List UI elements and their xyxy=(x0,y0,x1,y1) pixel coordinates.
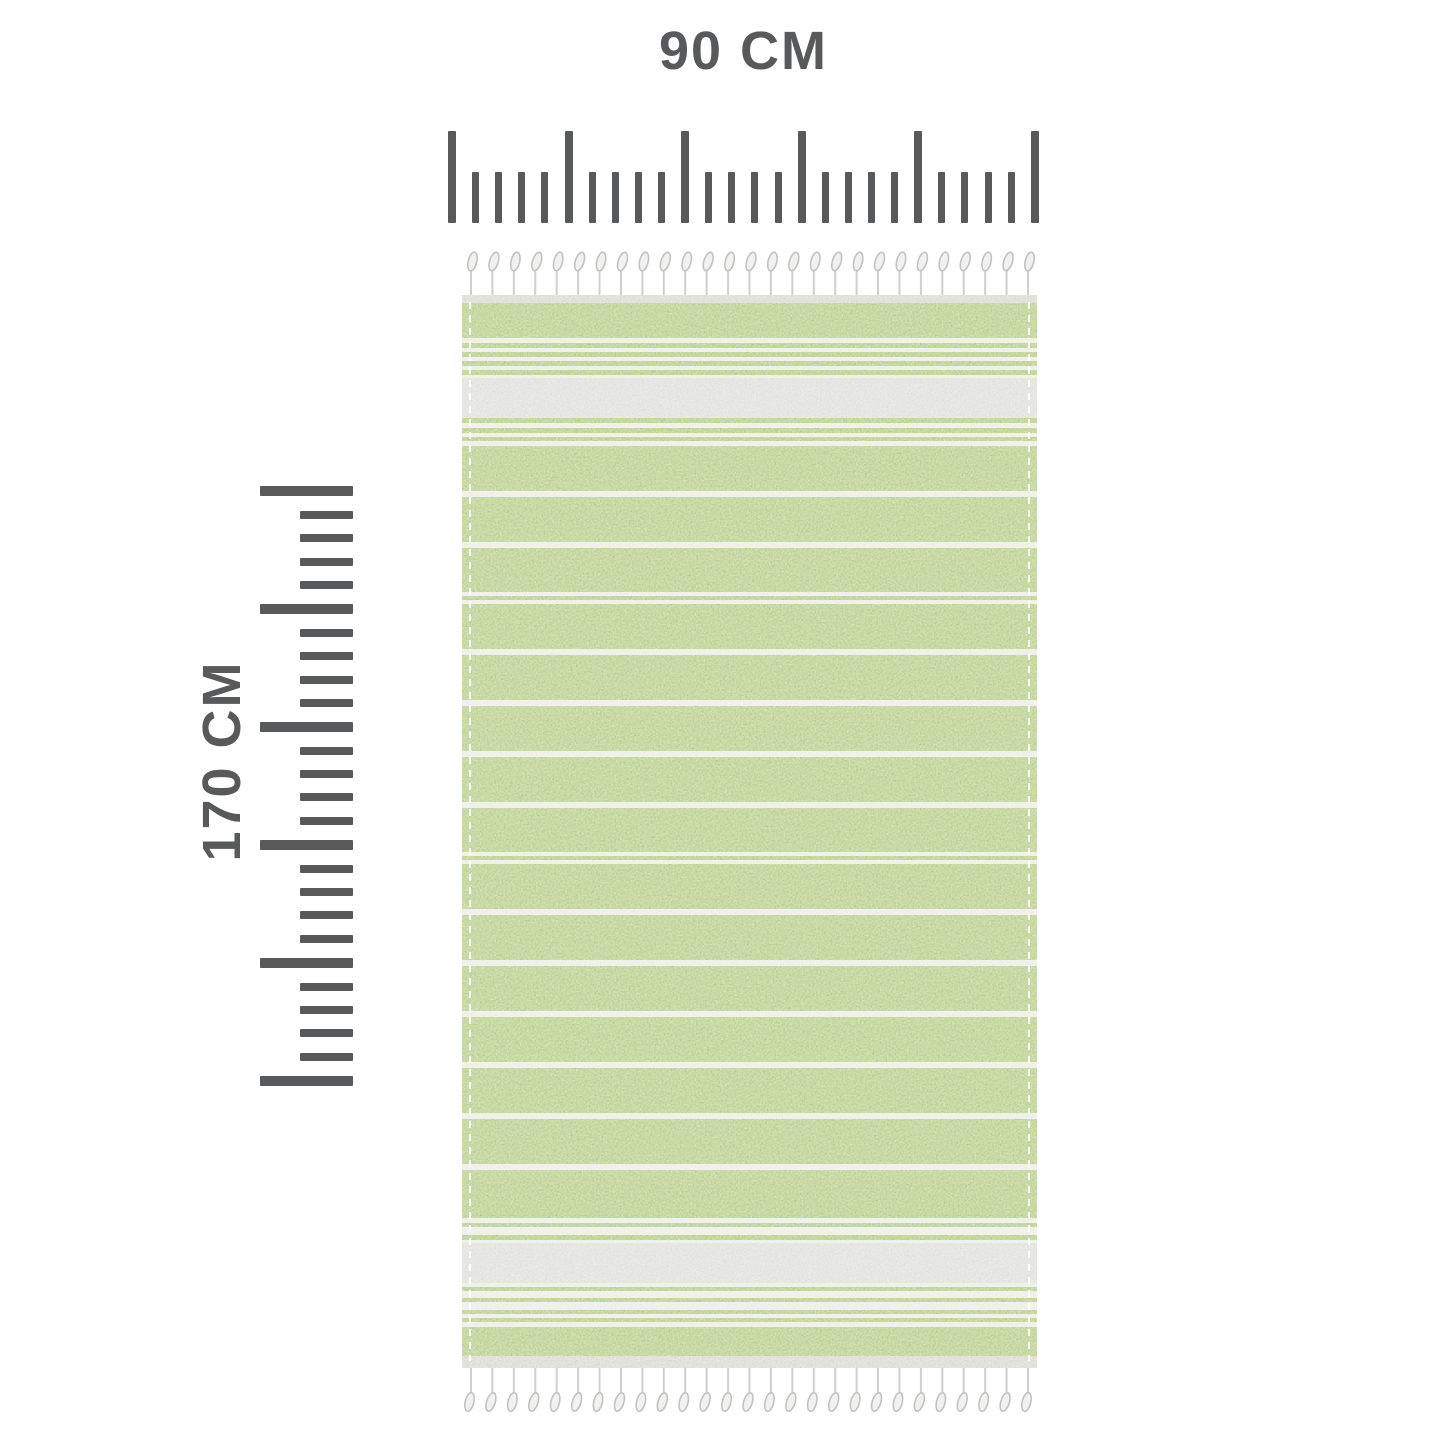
fringe-knot xyxy=(701,251,715,272)
fringe-knot xyxy=(958,251,972,272)
towel-stripe-green xyxy=(462,706,1037,751)
fringe-knot xyxy=(509,251,522,271)
ruler-minor-tick xyxy=(518,172,525,223)
fringe-knot xyxy=(658,251,672,272)
ruler-minor-tick xyxy=(658,172,665,223)
towel-stripe-green xyxy=(462,966,1037,1011)
ruler-minor-tick xyxy=(300,558,353,566)
ruler-major-tick xyxy=(448,131,456,223)
ruler-minor-tick xyxy=(891,172,898,223)
towel-stripe-white xyxy=(462,1227,1037,1235)
fringe-knot xyxy=(655,1392,669,1413)
fringe-knot xyxy=(870,1392,884,1413)
fringe-knot xyxy=(830,251,844,272)
fringe-knot xyxy=(592,1392,605,1412)
fringe-knot xyxy=(915,251,929,272)
towel-stripe-hem xyxy=(462,1356,1037,1368)
ruler-minor-tick xyxy=(541,172,548,223)
towel-stripe-green xyxy=(462,497,1037,542)
ruler-minor-tick xyxy=(300,793,353,801)
ruler-minor-tick xyxy=(612,172,619,223)
width-dimension-label: 90 CM xyxy=(448,20,1039,82)
fringe-knot xyxy=(677,1392,690,1412)
ruler-minor-tick xyxy=(300,676,353,684)
fringe-knot xyxy=(1023,251,1036,271)
ruler-minor-tick xyxy=(589,172,596,223)
ruler-major-tick xyxy=(260,958,353,968)
fringe-knot xyxy=(570,1392,584,1413)
ruler-minor-tick xyxy=(300,1053,353,1061)
ruler-minor-tick xyxy=(300,983,353,991)
ruler-minor-tick xyxy=(728,172,735,223)
ruler-major-tick xyxy=(681,131,689,223)
fringe-knot xyxy=(635,1392,648,1412)
fringe-knot xyxy=(720,1392,733,1412)
fringe-knot xyxy=(873,251,887,272)
fringe-knot xyxy=(1001,251,1015,272)
ruler-major-tick xyxy=(260,604,353,614)
ruler-minor-tick xyxy=(961,172,968,223)
stitch-line-right xyxy=(1028,302,1030,1361)
towel-stripe-green xyxy=(462,604,1037,649)
towel-stripe-white xyxy=(462,1291,1037,1298)
towel-stripe-green xyxy=(462,915,1037,960)
ruler-minor-tick xyxy=(775,172,782,223)
fringe-knot xyxy=(613,1392,627,1413)
fringe-knot xyxy=(741,1392,755,1413)
towel-stripe-green xyxy=(462,655,1037,700)
towel-stripe-green xyxy=(462,303,1037,338)
fringe-knot xyxy=(595,251,608,271)
ruler-minor-tick xyxy=(300,629,353,637)
fringe-knot xyxy=(723,251,736,271)
ruler-major-tick xyxy=(260,486,353,496)
ruler-minor-tick xyxy=(300,652,353,660)
fringe-knot xyxy=(638,251,651,271)
product-dimension-diagram: 90 CM 170 CM xyxy=(0,0,1445,1445)
fringe-knot xyxy=(955,1392,969,1413)
fringe-knot xyxy=(484,1392,498,1413)
towel-fringe-top xyxy=(462,250,1037,295)
fringe-knot xyxy=(895,251,908,271)
towel-stripe-gray xyxy=(462,378,1037,418)
towel-stripe-gray xyxy=(462,1243,1037,1283)
ruler-major-tick xyxy=(260,840,353,850)
ruler-major-tick xyxy=(798,131,806,223)
ruler-major-tick xyxy=(914,131,922,223)
ruler-minor-tick xyxy=(300,511,353,519)
ruler-major-tick xyxy=(260,722,353,732)
towel-stripe-green xyxy=(462,1119,1037,1164)
ruler-minor-tick xyxy=(868,172,875,223)
fringe-knot xyxy=(766,251,779,271)
towel-stripe-green xyxy=(462,1068,1037,1113)
fringe-knot xyxy=(549,1392,562,1412)
ruler-minor-tick xyxy=(300,935,353,943)
ruler-minor-tick xyxy=(300,1029,353,1037)
fringe-knot xyxy=(787,251,801,272)
fringe-knot xyxy=(784,1392,798,1413)
ruler-minor-tick xyxy=(300,534,353,542)
ruler-minor-tick xyxy=(300,770,353,778)
fringe-knot xyxy=(998,1392,1012,1413)
ruler-major-tick xyxy=(1031,131,1039,223)
towel-stripes xyxy=(462,295,1037,1368)
fringe-knot xyxy=(892,1392,905,1412)
fringe-knot xyxy=(977,1392,990,1412)
ruler-minor-tick xyxy=(705,172,712,223)
fringe-knot xyxy=(849,1392,862,1412)
fringe-knot xyxy=(698,1392,712,1413)
fringe-knot xyxy=(763,1392,776,1412)
ruler-minor-tick xyxy=(985,172,992,223)
fringe-knot xyxy=(744,251,758,272)
ruler-minor-tick xyxy=(822,172,829,223)
towel-fringe-bottom xyxy=(462,1368,1037,1413)
towel-stripe-green xyxy=(462,757,1037,802)
towel-stripe-green xyxy=(462,548,1037,592)
towel-image xyxy=(462,250,1037,1445)
fringe-knot xyxy=(980,251,993,271)
towel-stripe-hem xyxy=(462,295,1037,303)
stitch-line-left xyxy=(469,302,471,1361)
fringe-knot xyxy=(616,251,630,272)
ruler-minor-tick xyxy=(300,581,353,589)
towel-stripe-green xyxy=(462,1327,1037,1356)
ruler-minor-tick xyxy=(495,172,502,223)
ruler-minor-tick xyxy=(300,911,353,919)
towel-stripe-green xyxy=(462,808,1037,852)
fringe-knot xyxy=(552,251,565,271)
fringe-knot xyxy=(852,251,865,271)
fringe-knot xyxy=(463,1392,476,1412)
horizontal-ruler xyxy=(448,131,1039,223)
towel-stripe-green xyxy=(462,1170,1037,1215)
ruler-minor-tick xyxy=(635,172,642,223)
towel-stripe-green xyxy=(462,1017,1037,1062)
fringe-knot xyxy=(912,1392,926,1413)
fringe-knot xyxy=(527,1392,541,1413)
ruler-minor-tick xyxy=(845,172,852,223)
ruler-minor-tick xyxy=(300,888,353,896)
vertical-ruler xyxy=(260,486,353,1086)
ruler-minor-tick xyxy=(300,817,353,825)
fringe-knot xyxy=(680,251,693,271)
fringe-knot xyxy=(937,251,950,271)
fringe-knot xyxy=(487,251,501,272)
fringe-knot xyxy=(466,251,479,271)
ruler-major-tick xyxy=(260,1076,353,1086)
ruler-minor-tick xyxy=(300,699,353,707)
fringe-knot xyxy=(506,1392,519,1412)
ruler-minor-tick xyxy=(472,172,479,223)
ruler-minor-tick xyxy=(938,172,945,223)
ruler-minor-tick xyxy=(1008,172,1015,223)
fringe-knot xyxy=(809,251,822,271)
fringe-knot xyxy=(827,1392,841,1413)
fringe-knot xyxy=(530,251,544,272)
towel-stripe-white xyxy=(462,1302,1037,1310)
ruler-minor-tick xyxy=(300,747,353,755)
fringe-knot xyxy=(1020,1392,1033,1412)
height-dimension-label: 170 CM xyxy=(191,660,253,861)
ruler-minor-tick xyxy=(300,865,353,873)
towel-stripe-green xyxy=(462,864,1037,909)
ruler-major-tick xyxy=(565,131,573,223)
towel-stripe-green xyxy=(462,446,1037,491)
ruler-minor-tick xyxy=(751,172,758,223)
fringe-knot xyxy=(573,251,587,272)
fringe-knot xyxy=(806,1392,819,1412)
ruler-minor-tick xyxy=(300,1006,353,1014)
fringe-knot xyxy=(934,1392,947,1412)
